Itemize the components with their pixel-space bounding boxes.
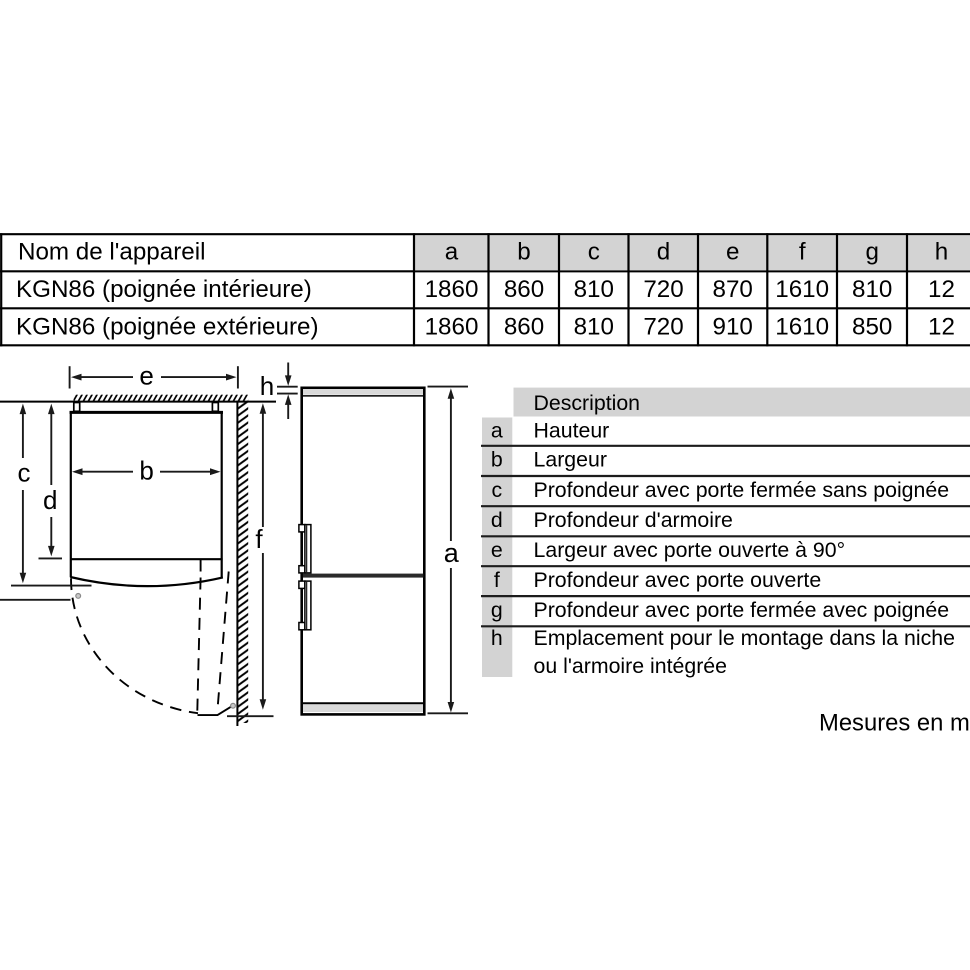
svg-text:Profondeur avec porte fermée s: Profondeur avec porte fermée sans poigné…	[534, 478, 950, 502]
svg-text:860: 860	[504, 276, 544, 303]
svg-text:c: c	[491, 478, 502, 502]
svg-text:c: c	[18, 458, 31, 488]
svg-text:870: 870	[713, 276, 753, 303]
svg-text:720: 720	[643, 276, 683, 303]
svg-text:a: a	[491, 418, 503, 442]
svg-text:f: f	[494, 568, 500, 592]
svg-text:1860: 1860	[425, 313, 479, 340]
svg-text:Emplacement pour le montage da: Emplacement pour le montage dans la nich…	[534, 626, 955, 650]
svg-text:12: 12	[928, 276, 955, 303]
svg-text:f: f	[799, 239, 806, 266]
svg-text:a: a	[445, 239, 459, 266]
svg-text:810: 810	[574, 276, 614, 303]
svg-text:g: g	[865, 239, 878, 266]
svg-text:KGN86 (poignée extérieure): KGN86 (poignée extérieure)	[16, 313, 319, 340]
svg-text:720: 720	[643, 313, 683, 340]
svg-text:Hauteur: Hauteur	[534, 418, 610, 442]
svg-text:b: b	[139, 456, 153, 486]
svg-text:1610: 1610	[775, 313, 829, 340]
svg-text:h: h	[260, 371, 274, 401]
svg-text:860: 860	[504, 313, 544, 340]
svg-text:g: g	[491, 598, 503, 622]
svg-text:b: b	[517, 239, 530, 266]
svg-text:h: h	[935, 239, 948, 266]
svg-text:850: 850	[852, 313, 892, 340]
svg-text:1860: 1860	[425, 276, 479, 303]
svg-text:Mesures en mm: Mesures en mm	[819, 710, 970, 737]
svg-text:810: 810	[852, 276, 892, 303]
svg-text:Profondeur avec porte ouverte: Profondeur avec porte ouverte	[534, 568, 822, 592]
svg-text:Description: Description	[534, 391, 641, 415]
svg-text:Nom de l'appareil: Nom de l'appareil	[18, 239, 205, 266]
svg-text:f: f	[255, 524, 263, 554]
svg-text:Profondeur d'armoire: Profondeur d'armoire	[534, 508, 733, 532]
svg-text:c: c	[588, 239, 600, 266]
svg-text:d: d	[657, 239, 670, 266]
svg-text:810: 810	[574, 313, 614, 340]
svg-text:d: d	[43, 485, 57, 515]
svg-text:Largeur: Largeur	[534, 448, 607, 472]
svg-text:Profondeur avec porte fermée a: Profondeur avec porte fermée avec poigné…	[534, 598, 950, 622]
svg-text:d: d	[491, 508, 503, 532]
svg-text:Largeur avec porte ouverte à 9: Largeur avec porte ouverte à 90°	[534, 538, 846, 562]
svg-text:h: h	[491, 626, 503, 650]
svg-text:KGN86 (poignée intérieure): KGN86 (poignée intérieure)	[16, 276, 312, 303]
svg-text:e: e	[491, 538, 503, 562]
svg-text:1610: 1610	[775, 276, 829, 303]
svg-text:e: e	[726, 239, 739, 266]
svg-text:b: b	[491, 448, 503, 472]
svg-text:ou l'armoire intégrée: ou l'armoire intégrée	[534, 654, 727, 678]
svg-text:12: 12	[928, 313, 955, 340]
svg-text:a: a	[444, 538, 460, 568]
svg-text:e: e	[139, 361, 153, 391]
svg-text:910: 910	[713, 313, 753, 340]
